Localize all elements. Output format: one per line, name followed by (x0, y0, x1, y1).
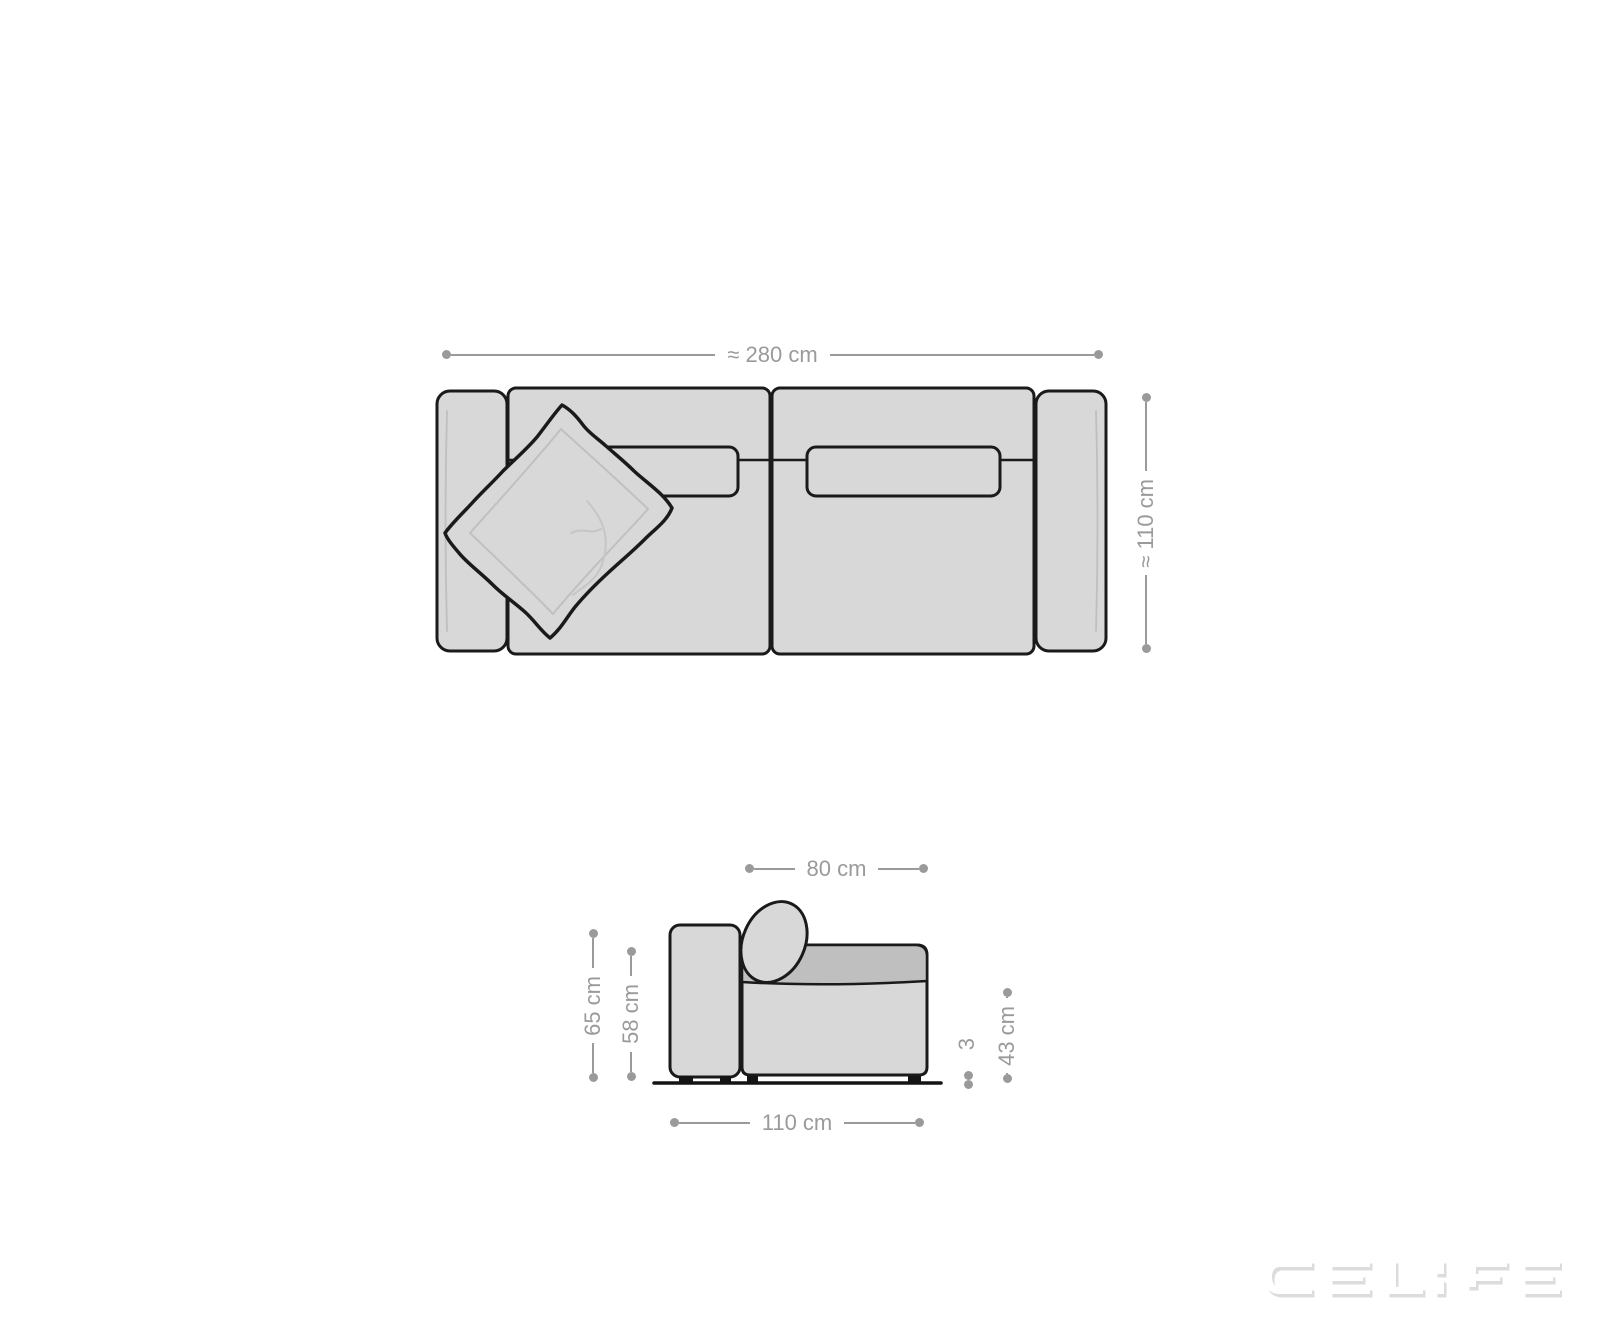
dimension-line (630, 956, 632, 976)
dimension-line (830, 354, 1094, 356)
dimension-line (844, 1122, 915, 1124)
dimension-endpoint-dot (589, 929, 598, 938)
sofa-side-view (645, 890, 955, 1095)
dimension-line (1145, 402, 1147, 471)
dimension-endpoint-dot (1142, 393, 1151, 402)
dimension-label-seat-depth: 80 cm (795, 858, 879, 880)
dimension-line (754, 868, 795, 870)
top-view-back-cushion-right (807, 447, 1000, 496)
dimension-endpoint-dot (1003, 988, 1012, 997)
dimension-line (679, 1122, 750, 1124)
dimension-line (1145, 575, 1147, 644)
dimension-label-back-height: 58 cm (620, 976, 642, 1052)
dimension-endpoint-dot (964, 1080, 973, 1089)
dimension-endpoint-dot (915, 1118, 924, 1127)
dimension-line (878, 868, 919, 870)
side-view-armrest (670, 925, 740, 1077)
dimension-top-width: ≈ 280 cm (442, 350, 1103, 359)
dimension-line (592, 938, 594, 968)
dimension-label-foot-height: 3 (956, 1038, 978, 1050)
dimension-endpoint-dot (1094, 350, 1103, 359)
dimension-endpoint-dot (964, 1071, 973, 1080)
dimension-line (451, 354, 715, 356)
dimension-endpoint-dot (1003, 1074, 1012, 1083)
delife-logo-letters (1264, 1260, 1560, 1294)
top-view-armrest-right (1036, 391, 1106, 651)
dimension-label-top-width: ≈ 280 cm (715, 344, 829, 366)
dimension-back-height: 58 cm (625, 947, 637, 1081)
dimension-foot-height (962, 1071, 974, 1084)
dimension-diagram-page: ≈ 280 cm ≈ 11 (0, 0, 1600, 1333)
dimension-label-total-height: 65 cm (582, 968, 604, 1044)
dimension-endpoint-dot (627, 947, 636, 956)
dimension-endpoint-dot (627, 1072, 636, 1081)
dimension-label-top-depth: ≈ 110 cm (1135, 471, 1157, 576)
dimension-top-depth: ≈ 110 cm (1140, 393, 1152, 653)
dimension-endpoint-dot (589, 1073, 598, 1082)
sofa-top-view (425, 383, 1125, 663)
dimension-endpoint-dot (442, 350, 451, 359)
dimension-seat-height: 43 cm (1001, 988, 1013, 1083)
dimension-total-height: 65 cm (587, 929, 599, 1082)
dimension-seat-depth: 80 cm (745, 864, 928, 873)
dimension-endpoint-dot (919, 864, 928, 873)
dimension-line (630, 1052, 632, 1072)
dimension-endpoint-dot (745, 864, 754, 873)
dimension-endpoint-dot (1142, 644, 1151, 653)
dimension-label-total-depth: 110 cm (750, 1112, 845, 1134)
dimension-total-depth: 110 cm (670, 1118, 924, 1127)
top-view-seat-right (772, 388, 1034, 654)
dimension-line (592, 1043, 594, 1073)
dimension-label-seat-height: 43 cm (996, 998, 1018, 1074)
dimension-endpoint-dot (670, 1118, 679, 1127)
delife-logo-watermark (1262, 1258, 1562, 1298)
